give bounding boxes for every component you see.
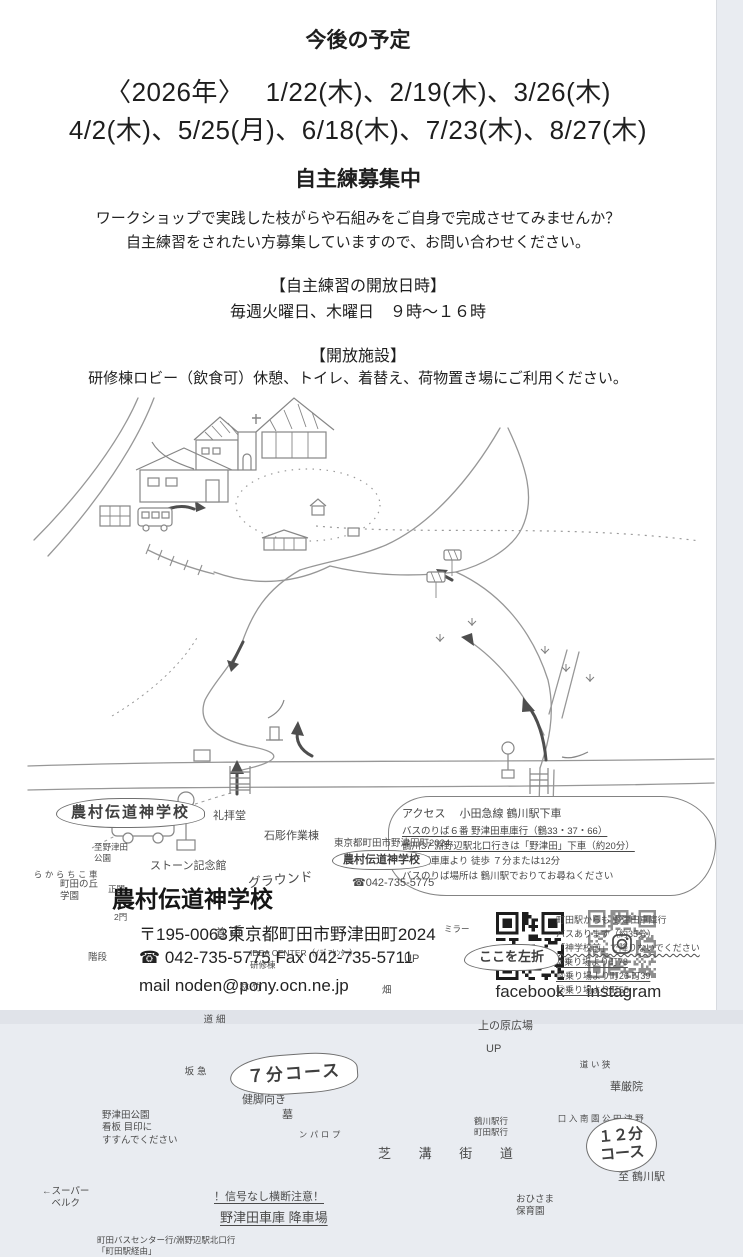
open-facility-title: 【開放施設】: [0, 342, 716, 366]
map-label: UP: [486, 1042, 501, 1056]
map-label: 野津田公園 看板 目印に すすんでください: [102, 1110, 178, 1147]
map-label: 急坂: [181, 1066, 206, 1078]
map-label: ミラー: [444, 924, 470, 935]
map-label: 狭い道: [578, 1060, 611, 1071]
map-label: 芝 溝 街 道: [378, 1146, 525, 1163]
open-facility: 研修棟ロビー（飲食可）休憩、トイレ、着替え、荷物置き場にご利用ください。: [0, 367, 716, 388]
text-line: 「神学校前」で降りないでください: [556, 942, 720, 956]
map-label: 野津田車庫 降車場: [220, 1210, 328, 1227]
map-label: 華厳院: [610, 1080, 643, 1094]
map-label: 車こちらから: [32, 870, 98, 888]
text-line: ⑫乗り場より町55: [556, 984, 720, 998]
text-line: ②乗り場より町78: [556, 956, 720, 970]
schedule-dates-line2: 4/2(木)、5/25(月)、6/18(木)、7/23(木)、8/27(木): [0, 110, 716, 147]
map-stairs: [146, 544, 202, 575]
text-line: アクセス 小田急線 鶴川駅下車: [402, 806, 702, 824]
schedule-title: 今後の予定: [0, 24, 716, 54]
recruit-desc-line1: ワークショップで実践した枝がらや石組みをご自身で完成させてみませんか？: [0, 207, 716, 228]
map-label: UP: [404, 952, 419, 966]
map-label: 正門: [108, 884, 125, 895]
map-label: 東京都町田市野津田町2024: [334, 838, 450, 850]
school-address: 〒195-0063東京都町田市野津田町2024: [139, 920, 436, 945]
map-buildings: [100, 398, 588, 850]
recruit-desc-line2: 自主練習をされたい方募集していますので、お問い合わせください。: [0, 231, 716, 252]
map-label: ストーン記念館: [150, 859, 226, 873]
map-arrowheads: [195, 501, 535, 774]
map-label: 竹林: [236, 982, 261, 994]
map-label: 礼拝堂: [213, 809, 246, 823]
map-label: 2門: [114, 912, 127, 923]
map-label: 研修棟: [250, 960, 276, 971]
map-label: 町田バスセンター行/淵野辺駅北口行 「町田駅経由」: [97, 1235, 235, 1257]
map-label: IDEA CENTER（ｲﾃﾞｱｾﾝﾀｰ）: [250, 948, 358, 959]
map-label: 階段: [88, 952, 107, 964]
flyer-page: 今後の予定 〈2026年〉 1/22(木)、2/19(木)、3/26(木) 4/…: [0, 0, 717, 1010]
text-line: 町田駅からも 野津田車庫行: [556, 914, 720, 928]
text-line: バスのりば場所は 鶴川駅でおりてお尋ねください: [402, 869, 702, 884]
text-line: バスあります（約35分）: [556, 928, 720, 942]
map-label: プロパン: [297, 1130, 341, 1141]
machida-bus-info: 町田駅からも 野津田車庫行バスあります（約35分）「神学校前」で降りないでくださ…: [556, 914, 720, 998]
map-label: 至野津田 公園: [94, 842, 128, 864]
map-dotted-paths: [92, 469, 700, 848]
photo-edge: [0, 1010, 743, 1024]
map-label: 農村伝道神学校: [56, 798, 205, 828]
map-label: ここを左折: [464, 944, 559, 971]
map-label: 墓: [282, 1108, 293, 1122]
text-line: バスのりば６番 野津田車庫行（鶴33・37・66）: [402, 824, 702, 839]
map-label: 健脚向き: [242, 1093, 286, 1107]
text-line: 野津田車庫より 徒歩 ７分または12分: [402, 854, 702, 869]
hand-drawn-access-map: アクセス 小田急線 鶴川駅下車バスのりば６番 野津田車庫行（鶴33・37・66）…: [0, 392, 716, 888]
map-label: ７分コース: [229, 1050, 360, 1099]
map-label: おひさま 保育園: [516, 1194, 554, 1219]
map-label: ☎042-735-5775: [352, 876, 434, 890]
map-label: ！信号なし横断注意！: [214, 1190, 324, 1204]
map-label: 至 鶴川駅: [618, 1170, 665, 1184]
map-label: 上の原広場: [478, 1019, 533, 1033]
map-label: 畑: [382, 985, 392, 997]
open-hours: 毎週火曜日、木曜日 ９時～１６時: [0, 298, 716, 322]
map-label: 農村伝道神学校: [332, 850, 431, 870]
recruit-title: 自主練募集中: [0, 163, 716, 193]
open-hours-title: 【自主練習の開放日時】: [0, 272, 716, 296]
text-line: ⑭乗り場より町26 町39: [556, 970, 720, 984]
map-label: 鶴川駅行 町田駅行: [474, 1116, 508, 1138]
map-tree-marks: [436, 618, 594, 682]
map-label: ←スーパー ベルク: [42, 1186, 89, 1211]
flyer-photo: { "schedule": { "title": "今後の予定", "line1…: [0, 0, 743, 1024]
map-label: 石彫作業棟: [264, 829, 319, 843]
schedule-dates-line1: 〈2026年〉 1/22(木)、2/19(木)、3/26(木): [0, 72, 716, 109]
